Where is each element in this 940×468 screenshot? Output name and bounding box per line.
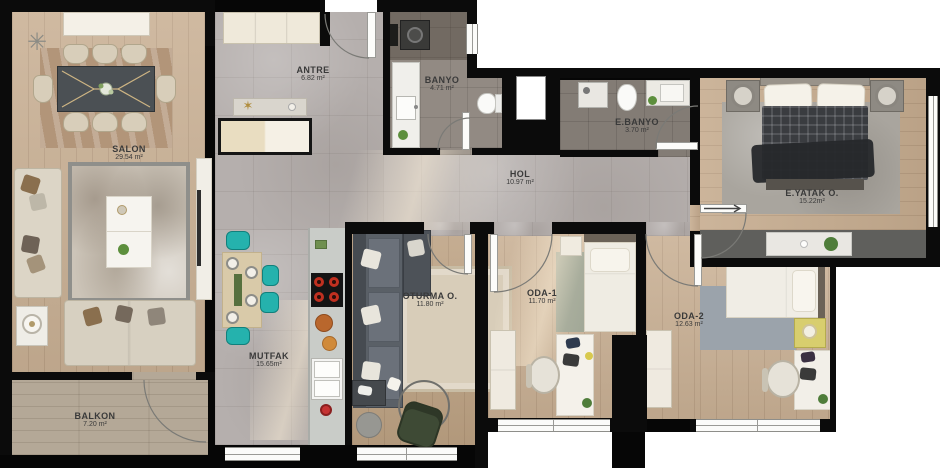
plant (824, 237, 838, 251)
sink-basin (314, 361, 340, 378)
chair-back (762, 368, 768, 392)
toilet (477, 93, 496, 114)
oda2-door-leaf (694, 234, 702, 286)
fruit-bowl (322, 336, 337, 351)
room-label-oda2: ODA-212.63 m² (674, 311, 704, 329)
wall (472, 148, 502, 155)
room-label-hol: HOL10.97 m² (506, 169, 534, 187)
faucet (414, 105, 418, 109)
pillow (361, 361, 381, 381)
room-label-ebanyo: E.BANYO3.70 m² (615, 117, 659, 135)
plant (118, 244, 129, 255)
table-runner (234, 274, 242, 306)
plate (226, 257, 239, 270)
wall-jamb (690, 419, 696, 432)
dining-chair (63, 44, 89, 64)
pillow (407, 239, 426, 258)
burner (329, 277, 339, 287)
room-label-balkon: BALKON7.20 m² (75, 411, 116, 429)
room-label-oda1: ODA-111.70 m² (527, 288, 557, 306)
pillow (115, 305, 134, 324)
wall-niche (612, 335, 647, 432)
banyo-door-leaf (462, 112, 470, 150)
ebanyo-door-leaf (656, 142, 698, 150)
dining-chair (63, 112, 89, 132)
room-label-mutfak: MUTFAK15.65m² (249, 351, 289, 369)
notebook (800, 351, 815, 363)
plant (818, 394, 828, 404)
exterior (488, 432, 612, 468)
plate (245, 266, 258, 279)
sink (660, 84, 684, 102)
oda1-doorway (494, 222, 552, 236)
toilet-tank (495, 94, 502, 113)
dresser-marble-top (766, 232, 852, 256)
plate (245, 294, 258, 307)
cutting-board (315, 240, 327, 249)
wall (196, 372, 215, 380)
exterior (325, 0, 377, 12)
wall (345, 222, 352, 445)
dining-table (57, 66, 155, 112)
pillow (360, 304, 381, 325)
wardrobe (490, 330, 516, 410)
room-label-oturma: OTURMA O.11.80 m² (403, 291, 458, 309)
wall (502, 78, 510, 155)
banyo-window (466, 24, 478, 54)
laptop (562, 353, 580, 367)
bath-shelf (390, 24, 398, 46)
room-label-antre: ANTRE6.82 m² (297, 65, 330, 83)
desk-lamp (585, 352, 593, 360)
room-label-banyo: BANYO4.71 m² (425, 75, 460, 93)
wall (377, 0, 477, 12)
dining-chair (156, 75, 176, 103)
kitchen-chair (260, 292, 279, 313)
room-label-salon: SALON29.54 m² (112, 144, 146, 162)
wall (552, 222, 646, 234)
wall-jamb (820, 419, 832, 432)
plate (802, 324, 817, 339)
pillow (29, 193, 48, 212)
valve-knob (320, 404, 332, 416)
tray (117, 205, 127, 215)
balcony-doorway (132, 372, 196, 380)
entry-closet (223, 12, 320, 44)
dining-chair (92, 112, 118, 132)
oda1-window (498, 419, 610, 432)
kitchen-chair (226, 327, 250, 345)
shower-tray (578, 82, 608, 108)
wall (383, 12, 390, 155)
bed-pillow (590, 248, 630, 272)
entrance-door-leaf (367, 12, 376, 58)
tray-item (29, 321, 35, 327)
vase-icon: ✶ (240, 98, 256, 114)
plant (398, 130, 408, 140)
shaft (516, 76, 546, 120)
wall (690, 258, 930, 267)
lamp (731, 84, 755, 108)
eyatak-window (928, 96, 938, 227)
wall (205, 0, 215, 46)
ebanyo-doorway (658, 150, 690, 157)
washer-door (407, 27, 423, 43)
coffee-table (106, 196, 152, 268)
tv (197, 190, 201, 266)
exterior (645, 432, 836, 468)
oda1-rug (556, 252, 586, 332)
wardrobe (646, 330, 672, 408)
wall (352, 222, 424, 234)
desk-chair (528, 356, 560, 394)
oturma-window (357, 447, 457, 461)
burner (314, 292, 324, 302)
eyatak-door-leaf (700, 204, 747, 213)
wall (560, 150, 658, 157)
shower-head (583, 87, 590, 94)
bowl (288, 103, 296, 111)
dining-chair (92, 44, 118, 64)
sink-basin (314, 380, 340, 397)
desk-chair (766, 360, 800, 398)
oturma-door-leaf (464, 234, 472, 274)
burner (329, 292, 339, 302)
room-label-eyatak: E.YATAK O.15.22m² (785, 188, 838, 206)
bed-throw (751, 139, 875, 183)
chair-back (526, 364, 532, 388)
exterior (836, 267, 940, 468)
floor-plan: ✳ ✶ (0, 0, 940, 468)
hol-floor (383, 155, 690, 230)
oda2-window (696, 419, 820, 432)
pillow (21, 235, 41, 255)
wall-jamb (488, 418, 498, 432)
laptop (799, 367, 816, 381)
lamp (875, 84, 899, 108)
wall (383, 148, 440, 155)
wall (0, 0, 12, 455)
kitchen-chair (262, 265, 279, 286)
dining-chair (121, 112, 147, 132)
plant (582, 398, 592, 408)
dining-chair (121, 44, 147, 64)
dining-chair (33, 75, 53, 103)
shoe-cabinet (218, 118, 312, 155)
toilet (617, 84, 637, 111)
sink (396, 96, 416, 120)
wall (636, 232, 646, 335)
plant (648, 96, 657, 105)
ceiling-fan-icon: ✳ (20, 26, 54, 60)
wall-jamb (610, 418, 614, 432)
wall (690, 68, 700, 205)
fruit-bowl (315, 314, 333, 332)
pillow (147, 307, 166, 326)
burner (314, 277, 324, 287)
bed-pillow (792, 270, 816, 312)
oda1-door-leaf (490, 234, 498, 292)
exterior (477, 0, 940, 68)
lamp-base (356, 412, 382, 438)
coffee-table-divider (107, 231, 151, 232)
wall (12, 372, 132, 380)
eyatak-doorway (690, 205, 700, 231)
wall (475, 222, 488, 468)
wall (0, 0, 215, 12)
kitchen-chair (226, 231, 250, 250)
nightstand (560, 236, 582, 256)
kitchen-window (225, 447, 300, 461)
headboard (818, 264, 825, 318)
decor-dot (800, 240, 808, 248)
plate (226, 311, 239, 324)
sideboard (63, 12, 150, 36)
